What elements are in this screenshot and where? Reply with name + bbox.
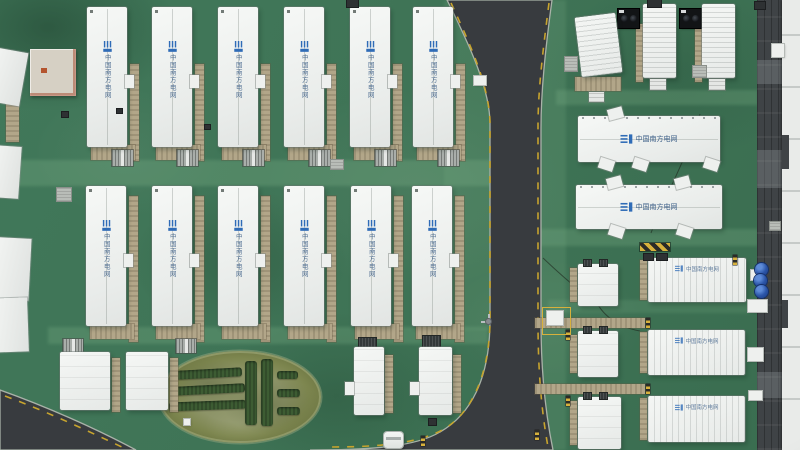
white-vehicle xyxy=(384,432,403,448)
csg-logo-icon xyxy=(675,265,683,272)
csg-logo-text: 中国南方电网 xyxy=(686,265,719,273)
battery-container: 中国南方电网 xyxy=(218,7,258,147)
fan-icon xyxy=(630,15,637,22)
cable-tray xyxy=(636,24,643,82)
csg-logo-text: 中国南方电网 xyxy=(685,403,718,411)
battery-container-ribbed: 中国南方电网 xyxy=(648,258,746,302)
side-cabinet xyxy=(451,75,460,88)
blue-drum xyxy=(755,285,768,298)
csg-logo-text: 中国南方电网 xyxy=(368,233,375,278)
roof-vent xyxy=(155,10,158,13)
edge-building-fragment xyxy=(0,48,28,107)
hvac-unit xyxy=(680,9,701,28)
gravel-strip xyxy=(6,100,19,142)
csg-logo-icon xyxy=(300,220,309,231)
roof-vent xyxy=(416,10,419,13)
side-cabinet xyxy=(388,75,397,88)
pcs-building: 中国南方电网 xyxy=(578,116,720,162)
auxiliary-container xyxy=(578,264,618,306)
csg-logo-icon xyxy=(234,220,243,231)
strip-patch xyxy=(757,60,783,84)
side-cabinet xyxy=(322,75,331,88)
roof-hatch xyxy=(41,68,47,73)
storage-container xyxy=(60,352,110,410)
battery-container: 中国南方电网 xyxy=(413,7,453,147)
csg-logo-text: 中国南方电网 xyxy=(169,233,176,278)
gravel-skirt xyxy=(156,324,200,339)
gravel-skirt xyxy=(355,324,399,339)
cable-tray xyxy=(570,335,577,373)
csg-logo-text: 中国南方电网 xyxy=(301,233,308,278)
side-cabinet xyxy=(190,254,199,267)
csg-logo-icon xyxy=(366,41,375,52)
csg-logo: 中国南方电网 xyxy=(675,265,719,273)
csg-logo-text: 中国南方电网 xyxy=(429,233,436,278)
csg-logo-icon xyxy=(621,202,633,212)
battery-container: 中国南方电网 xyxy=(87,7,127,147)
cable-tray xyxy=(394,196,403,342)
cable-tray xyxy=(327,196,336,342)
cable-tray xyxy=(112,358,120,412)
side-cabinet xyxy=(345,382,354,395)
storage-container xyxy=(126,352,168,410)
roof-vent xyxy=(221,10,224,13)
csg-logo-icon xyxy=(234,41,243,52)
side-cabinet xyxy=(125,75,134,88)
vent-cabinet xyxy=(243,150,264,166)
utility-box xyxy=(748,300,767,312)
cable-tray xyxy=(640,398,647,440)
hvac-panel xyxy=(619,10,624,13)
utility-box xyxy=(772,44,784,57)
gravel-skirt xyxy=(288,324,332,339)
utility-box xyxy=(693,66,706,77)
roof-vent xyxy=(155,189,158,192)
hazard-post xyxy=(535,430,539,440)
csg-logo-text: 中国南方电网 xyxy=(301,54,308,99)
roof-vent xyxy=(90,10,93,13)
hazard-post xyxy=(733,255,737,265)
csg-logo: 中国南方电网 xyxy=(674,337,718,345)
csg-logo-icon xyxy=(168,220,177,231)
csg-logo: 中国南方电网 xyxy=(621,134,678,144)
roof-vent xyxy=(600,393,607,399)
csg-logo: 中国南方电网 xyxy=(621,202,678,212)
cable-tray xyxy=(453,355,461,413)
windshield xyxy=(386,437,401,440)
equipment-item xyxy=(117,109,122,113)
roof-vent xyxy=(354,189,357,192)
edge-container-row xyxy=(782,0,800,450)
equipment-item xyxy=(347,0,358,7)
equipment-item xyxy=(648,0,661,7)
storage-container xyxy=(419,347,452,415)
utility-box xyxy=(748,348,763,361)
battery-container: 中国南方电网 xyxy=(284,7,324,147)
csg-logo-icon xyxy=(168,41,177,52)
vent-cabinet xyxy=(177,150,198,166)
csg-logo-icon xyxy=(621,134,633,144)
csg-logo: 中国南方电网 xyxy=(87,42,127,99)
auxiliary-container xyxy=(578,397,621,449)
hazard-post xyxy=(646,318,650,328)
csg-logo: 中国南方电网 xyxy=(413,42,453,99)
csg-logo: 中国南方电网 xyxy=(351,221,391,278)
gravel-skirt xyxy=(575,77,621,91)
csg-logo-text: 中国南方电网 xyxy=(103,233,110,278)
cable-tray xyxy=(170,358,178,412)
pcs-building: 中国南方电网 xyxy=(576,185,722,229)
battery-container: 中国南方电网 xyxy=(284,186,324,326)
csg-logo-text: 中国南方电网 xyxy=(367,54,374,99)
csg-logo-text: 中国南方电网 xyxy=(235,233,242,278)
csg-logo: 中国南方电网 xyxy=(284,221,324,278)
utility-box xyxy=(565,57,577,71)
roof-vent xyxy=(584,260,591,266)
csg-logo-icon xyxy=(674,337,682,344)
csg-logo-text: 中国南方电网 xyxy=(104,54,111,99)
auxiliary-building xyxy=(30,49,76,96)
battery-container: 中国南方电网 xyxy=(350,7,390,147)
csg-logo-text: 中国南方电网 xyxy=(685,337,718,345)
battery-container: 中国南方电网 xyxy=(412,186,452,326)
csg-logo-icon xyxy=(300,41,309,52)
csg-logo-icon xyxy=(103,41,112,52)
roof-vent xyxy=(600,260,607,266)
csg-logo: 中国南方电网 xyxy=(218,221,258,278)
csg-logo: 中国南方电网 xyxy=(86,221,126,278)
cable-tray xyxy=(640,332,647,373)
csg-logo-icon xyxy=(674,404,682,411)
cable-tray xyxy=(570,268,577,302)
hazard-marking xyxy=(640,243,670,251)
roof-vent xyxy=(221,189,224,192)
edge-building-fragment xyxy=(0,297,29,352)
anchor-box xyxy=(644,254,653,260)
storage-container xyxy=(354,347,384,415)
fan-icon xyxy=(692,15,699,22)
vent-cabinet xyxy=(309,150,330,166)
side-cabinet xyxy=(450,254,459,267)
battery-container-ribbed xyxy=(702,4,735,78)
csg-logo-text: 中国南方电网 xyxy=(636,134,678,144)
battery-container: 中国南方电网 xyxy=(86,186,126,326)
battery-container-ribbed: 中国南方电网 xyxy=(648,330,745,375)
equipment-item xyxy=(205,125,210,129)
hvac-panel xyxy=(681,10,686,13)
hazard-post xyxy=(421,436,425,446)
battery-container-ribbed xyxy=(643,4,676,78)
csg-logo: 中国南方电网 xyxy=(152,221,192,278)
side-cabinet xyxy=(256,75,265,88)
equipment-item xyxy=(755,2,765,9)
csg-logo: 中国南方电网 xyxy=(152,42,192,99)
access-steps xyxy=(709,79,725,90)
roof-vent xyxy=(584,327,591,333)
utility-box xyxy=(770,222,780,230)
csg-logo: 中国南方电网 xyxy=(412,221,452,278)
csg-logo-icon xyxy=(367,220,376,231)
side-cabinet xyxy=(256,254,265,267)
equipment-item xyxy=(429,419,436,425)
roof-edge-vents xyxy=(580,186,718,188)
equipment-item xyxy=(62,112,68,117)
utility-box xyxy=(749,391,762,400)
csg-logo: 中国南方电网 xyxy=(218,42,258,99)
hazard-post xyxy=(566,396,570,406)
site-objects: 中国南方电网中国南方电网中国南方电网中国南方电网中国南方电网中国南方电网中国南方… xyxy=(0,0,800,450)
csg-logo: 中国南方电网 xyxy=(350,42,390,99)
csg-logo-text: 中国南方电网 xyxy=(169,54,176,99)
csg-logo-icon xyxy=(428,220,437,231)
transformer-vent xyxy=(423,336,440,347)
utility-box xyxy=(57,188,71,201)
csg-logo-icon xyxy=(102,220,111,231)
utility-box xyxy=(474,76,486,85)
cable-tray xyxy=(129,196,138,342)
csg-logo-text: 中国南方电网 xyxy=(636,202,678,212)
side-cabinet xyxy=(389,254,398,267)
access-steps xyxy=(650,79,666,90)
auxiliary-container xyxy=(578,331,618,377)
roof-vent xyxy=(353,10,356,13)
aerial-photo-energy-storage-station: 中国南方电网中国南方电网中国南方电网中国南方电网中国南方电网中国南方电网中国南方… xyxy=(0,0,800,450)
battery-container-ribbed: 中国南方电网 xyxy=(648,396,745,442)
edge-building-fragment xyxy=(0,237,32,301)
battery-container-ribbed xyxy=(574,13,622,78)
cable-tray xyxy=(195,196,204,342)
battery-container: 中国南方电网 xyxy=(152,186,192,326)
anchor-box xyxy=(657,254,667,260)
csg-logo-text: 中国南方电网 xyxy=(430,54,437,99)
battery-container: 中国南方电网 xyxy=(218,186,258,326)
edge-building-fragment xyxy=(0,145,22,199)
utility-box xyxy=(547,311,563,325)
battery-container: 中国南方电网 xyxy=(351,186,391,326)
cable-tray xyxy=(640,260,647,300)
side-cabinet xyxy=(190,75,199,88)
side-cabinet xyxy=(124,254,133,267)
roof-vent xyxy=(287,189,290,192)
roof-vent xyxy=(600,327,607,333)
utility-box xyxy=(331,160,343,169)
hvac-unit xyxy=(618,9,639,28)
cable-tray xyxy=(455,196,464,342)
cable-tray xyxy=(385,355,393,413)
panel-gap xyxy=(782,300,788,328)
lamp-head xyxy=(486,319,491,324)
csg-logo-icon xyxy=(429,41,438,52)
vent-cabinet xyxy=(176,339,196,353)
fan-icon xyxy=(621,15,628,22)
strip-patch xyxy=(757,150,783,188)
access-steps xyxy=(589,92,604,102)
gravel-skirt xyxy=(90,324,134,339)
vent-cabinet xyxy=(112,150,133,166)
roof-vent xyxy=(415,189,418,192)
csg-logo: 中国南方电网 xyxy=(284,42,324,99)
gravel-skirt xyxy=(222,324,266,339)
vent-cabinet xyxy=(438,150,459,166)
side-cabinet xyxy=(410,382,419,395)
cable-tray xyxy=(570,401,577,445)
cable-tray xyxy=(261,196,270,342)
hazard-post xyxy=(646,384,650,394)
vent-cabinet xyxy=(63,339,83,353)
roof-vent xyxy=(287,10,290,13)
panel-gap xyxy=(782,135,789,169)
roof-vent xyxy=(89,189,92,192)
roof-vent xyxy=(584,393,591,399)
csg-logo-text: 中国南方电网 xyxy=(235,54,242,99)
vent-cabinet xyxy=(375,150,396,166)
csg-logo: 中国南方电网 xyxy=(674,403,718,411)
side-cabinet xyxy=(322,254,331,267)
fan-icon xyxy=(683,15,690,22)
battery-container: 中国南方电网 xyxy=(152,7,192,147)
roof-edge-vents xyxy=(582,117,716,119)
